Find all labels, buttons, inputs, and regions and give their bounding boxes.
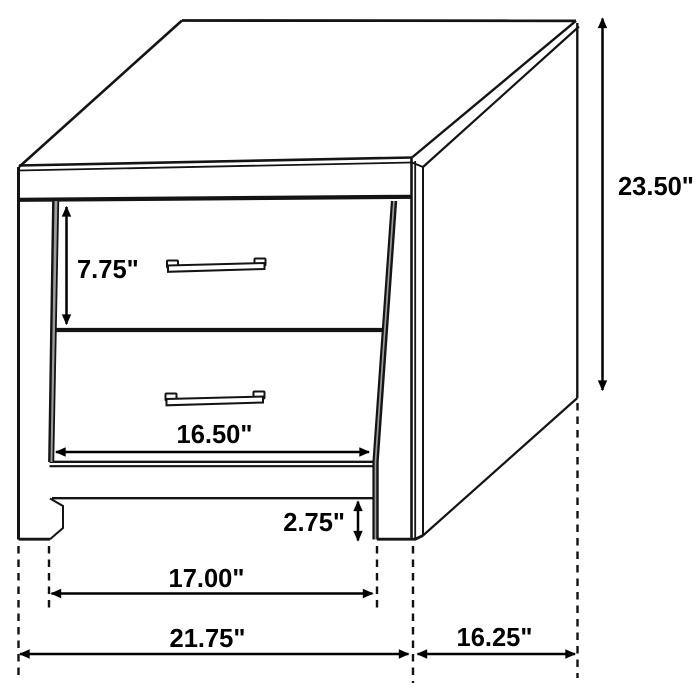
label-between-legs-width: 17.00" [169,565,245,593]
label-overall-height: 23.50" [618,173,694,201]
label-drawer-front-height: 7.75" [77,256,139,284]
nightstand-dimension-drawing: 7.75" 23.50" 16.50" 2.75" 17.00" 21.75" … [0,0,700,700]
label-overall-width: 21.75" [170,625,246,653]
dimension-diagram-canvas: 7.75" 23.50" 16.50" 2.75" 17.00" 21.75" … [0,0,700,700]
label-side-depth: 16.25" [457,624,533,652]
label-foot-clearance: 2.75" [283,509,345,537]
label-drawer-width: 16.50" [177,421,253,449]
